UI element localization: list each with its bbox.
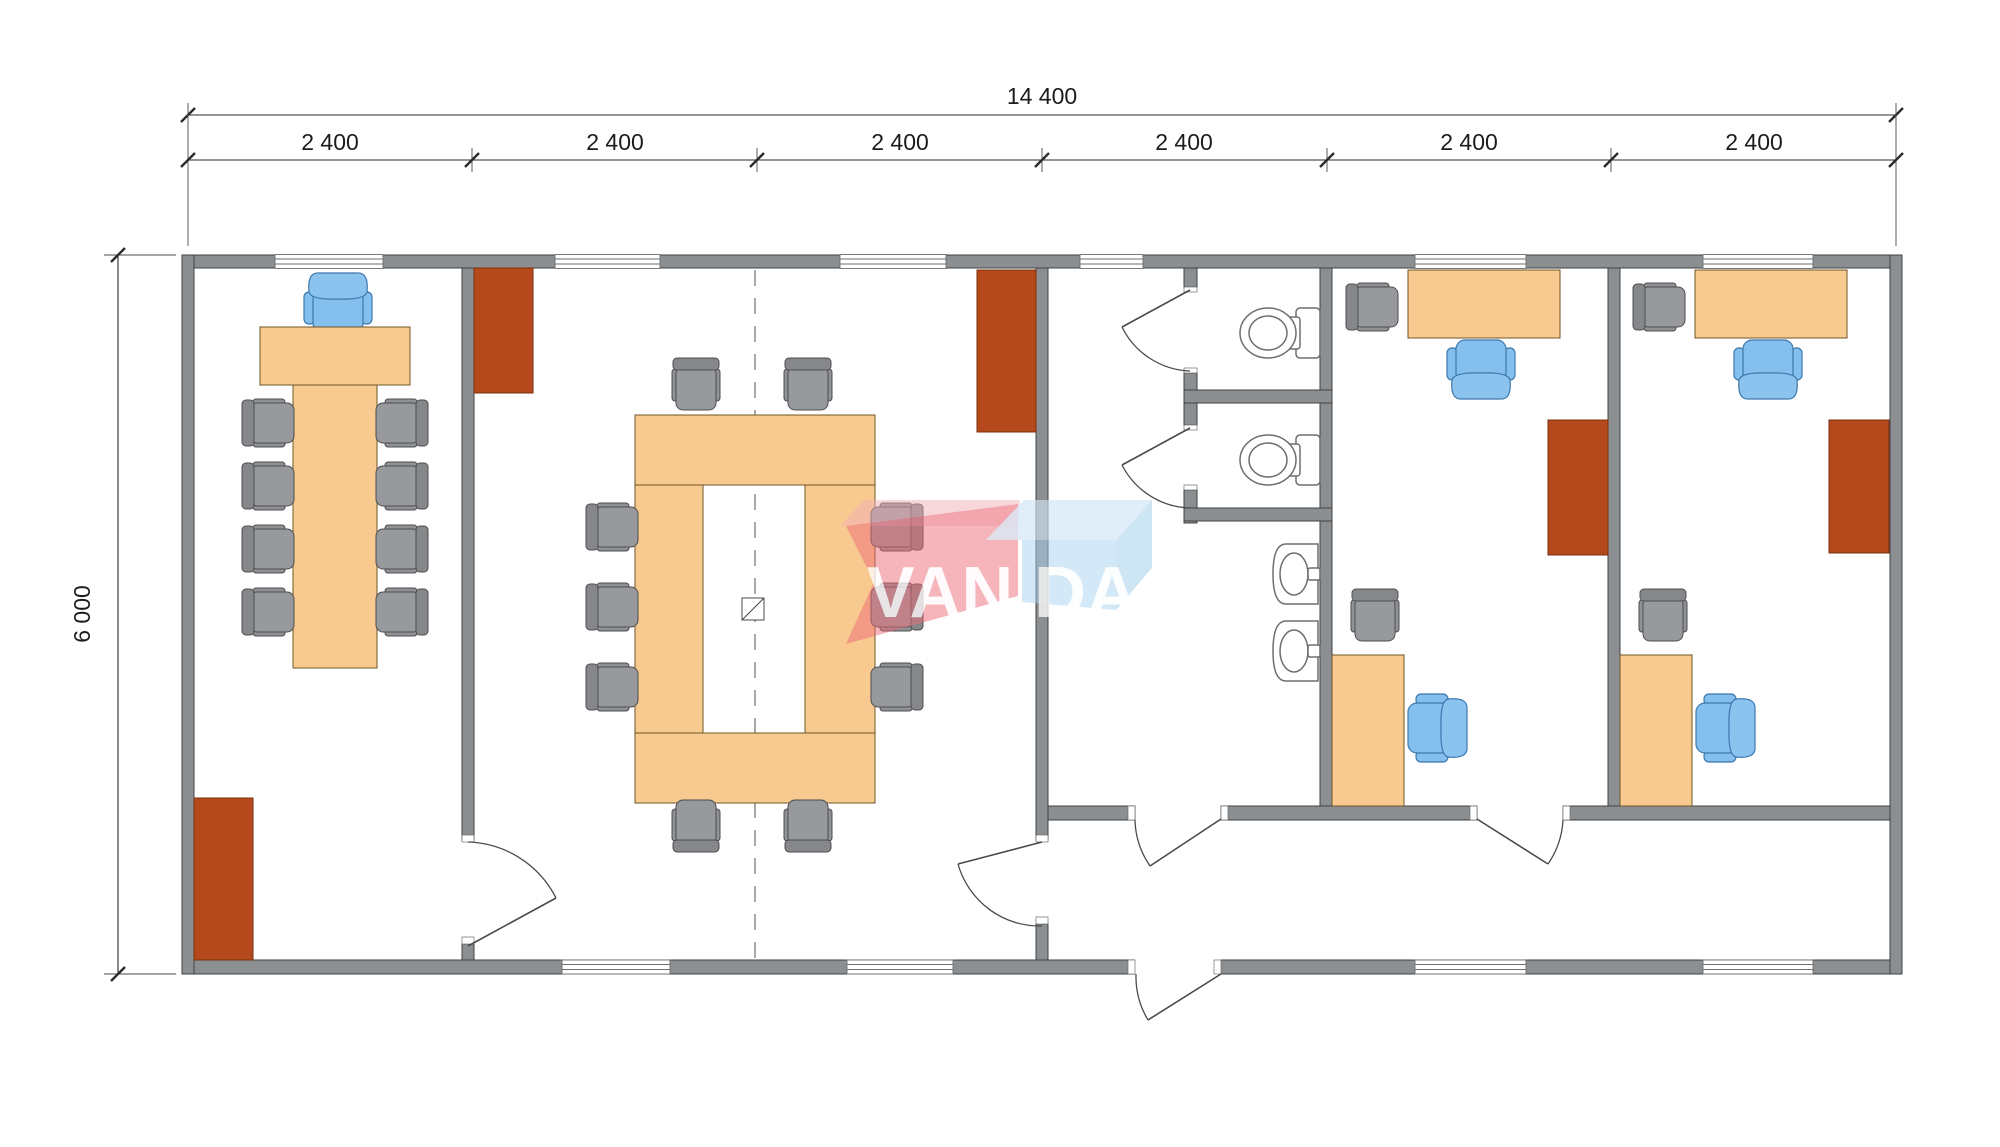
conference-table-left xyxy=(635,485,703,733)
meeting-table-head xyxy=(260,327,410,385)
watermark-text-right: DA xyxy=(1034,553,1138,633)
door-wc-stall2 xyxy=(1122,428,1190,508)
wall-north xyxy=(182,255,1902,268)
dimension-segment-2: 2 400 xyxy=(586,129,644,155)
meeting-table-stem xyxy=(293,385,377,668)
wall-stall-front-a xyxy=(1184,268,1197,287)
window-north-room1 xyxy=(275,255,383,269)
wall-room2-hall-stub xyxy=(1036,924,1048,960)
window-south-room2-b xyxy=(847,960,953,974)
meeting-chair xyxy=(1633,283,1685,331)
window-north-room2-a xyxy=(555,255,660,269)
dimension-segment-4: 2 400 xyxy=(1155,129,1213,155)
column xyxy=(742,598,764,620)
sink xyxy=(1273,621,1320,681)
wall-west xyxy=(182,255,194,974)
wall-room1-room2-stub xyxy=(462,944,474,960)
cabinet xyxy=(194,798,253,960)
dimension-segment-6: 2 400 xyxy=(1725,129,1783,155)
entrance-opening xyxy=(1135,959,1221,975)
meeting-chair xyxy=(672,358,720,410)
meeting-chair xyxy=(242,399,294,447)
window-north-office2 xyxy=(1703,255,1813,269)
wall-hall-north-c xyxy=(1563,806,1890,820)
meeting-chair xyxy=(242,525,294,573)
door-entrance xyxy=(1136,974,1221,1020)
wall-hall-north-a xyxy=(1048,806,1135,820)
window-south-room2-a xyxy=(562,960,670,974)
floor-plan-canvas: 14 400 2 400 2 400 2 400 2 400 2 400 2 4… xyxy=(0,0,2000,1147)
task-chair xyxy=(1408,694,1467,762)
wall-hall-north-b xyxy=(1221,806,1477,820)
task-chair xyxy=(304,273,372,332)
toilet xyxy=(1240,435,1320,485)
window-north-office1 xyxy=(1415,255,1526,269)
office-1 xyxy=(1332,270,1608,806)
conference-table-top xyxy=(635,415,875,485)
door-room1-room2 xyxy=(468,842,556,946)
sink xyxy=(1273,544,1320,604)
dimension-segment-3: 2 400 xyxy=(871,129,929,155)
meeting-chair xyxy=(1351,589,1399,641)
desk xyxy=(1695,270,1847,338)
wall-wc-office1 xyxy=(1320,268,1332,820)
toilet xyxy=(1240,308,1320,358)
desk xyxy=(1332,655,1404,806)
window-north-wc xyxy=(1080,255,1143,269)
meeting-chair xyxy=(376,399,428,447)
door-wc-hall xyxy=(1135,819,1221,866)
meeting-chair xyxy=(242,462,294,510)
meeting-chair xyxy=(1639,589,1687,641)
wc-area xyxy=(1240,308,1320,681)
cabinet xyxy=(1829,420,1889,553)
wall-office1-office2 xyxy=(1608,268,1620,820)
watermark-text-left: VAN xyxy=(867,553,1014,633)
window-south-hall-b xyxy=(1703,960,1813,974)
dimension-segment-5: 2 400 xyxy=(1440,129,1498,155)
meeting-chair xyxy=(784,358,832,410)
task-chair xyxy=(1696,694,1755,762)
door-office1-hall xyxy=(1477,819,1563,864)
meeting-chair xyxy=(672,800,720,852)
window-north-room2-b xyxy=(840,255,946,269)
cabinet xyxy=(1548,420,1608,555)
meeting-chair xyxy=(1346,283,1398,331)
door-wc-stall1 xyxy=(1122,290,1190,371)
meeting-chair xyxy=(242,588,294,636)
desk xyxy=(1408,270,1560,338)
office-2 xyxy=(1620,270,1889,806)
wall-stall-divider xyxy=(1184,390,1332,403)
window-south-hall-a xyxy=(1415,960,1526,974)
dimension-segment-1: 2 400 xyxy=(301,129,359,155)
wall-south xyxy=(182,960,1902,974)
meeting-chair xyxy=(871,663,923,711)
cabinet xyxy=(977,270,1036,432)
meeting-chair xyxy=(586,503,638,551)
meeting-chair xyxy=(376,525,428,573)
wall-room1-room2 xyxy=(462,268,474,840)
meeting-chair xyxy=(586,583,638,631)
task-chair xyxy=(1734,340,1802,399)
desk xyxy=(1620,655,1692,806)
meeting-chair xyxy=(376,462,428,510)
conference-table-bottom xyxy=(635,733,875,803)
door-room2-hall xyxy=(958,842,1042,926)
meeting-chair xyxy=(586,663,638,711)
meeting-chair xyxy=(376,588,428,636)
meeting-chair xyxy=(784,800,832,852)
dimension-total-width: 14 400 xyxy=(1007,83,1077,109)
floor-plan-drawing: 14 400 2 400 2 400 2 400 2 400 2 400 2 4… xyxy=(0,0,2000,1147)
vanda-watermark: VAN DA xyxy=(840,500,1152,644)
task-chair xyxy=(1447,340,1515,399)
meeting-room xyxy=(194,273,428,960)
wall-stall-bottom xyxy=(1184,508,1332,521)
dimension-height: 6 000 xyxy=(69,585,95,643)
cabinet xyxy=(474,268,533,393)
wall-east xyxy=(1890,255,1902,974)
